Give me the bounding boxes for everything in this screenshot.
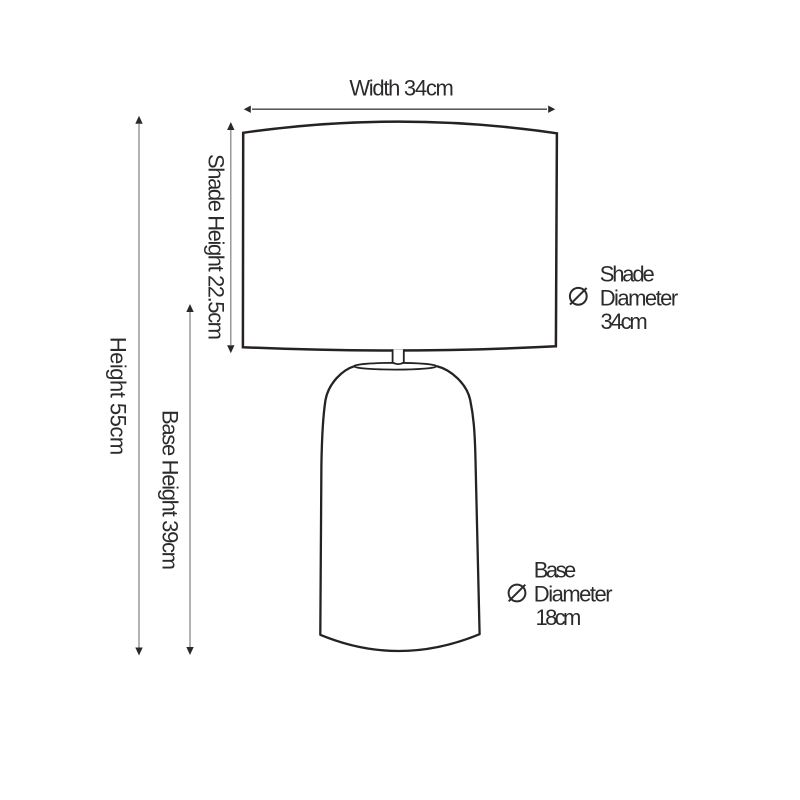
- svg-text:Diameter: Diameter: [534, 581, 613, 606]
- svg-text:Height 55cm: Height 55cm: [106, 337, 131, 455]
- svg-text:Shade Height 22.5cm: Shade Height 22.5cm: [204, 154, 229, 340]
- svg-text:Diameter: Diameter: [600, 285, 679, 310]
- svg-text:Base: Base: [534, 558, 577, 583]
- svg-text:Shade: Shade: [600, 262, 655, 287]
- svg-text:Base Height 39cm: Base Height 39cm: [157, 410, 182, 570]
- svg-text:Width 34cm: Width 34cm: [349, 76, 454, 101]
- svg-text:18cm: 18cm: [536, 605, 582, 630]
- svg-text:34cm: 34cm: [601, 309, 648, 334]
